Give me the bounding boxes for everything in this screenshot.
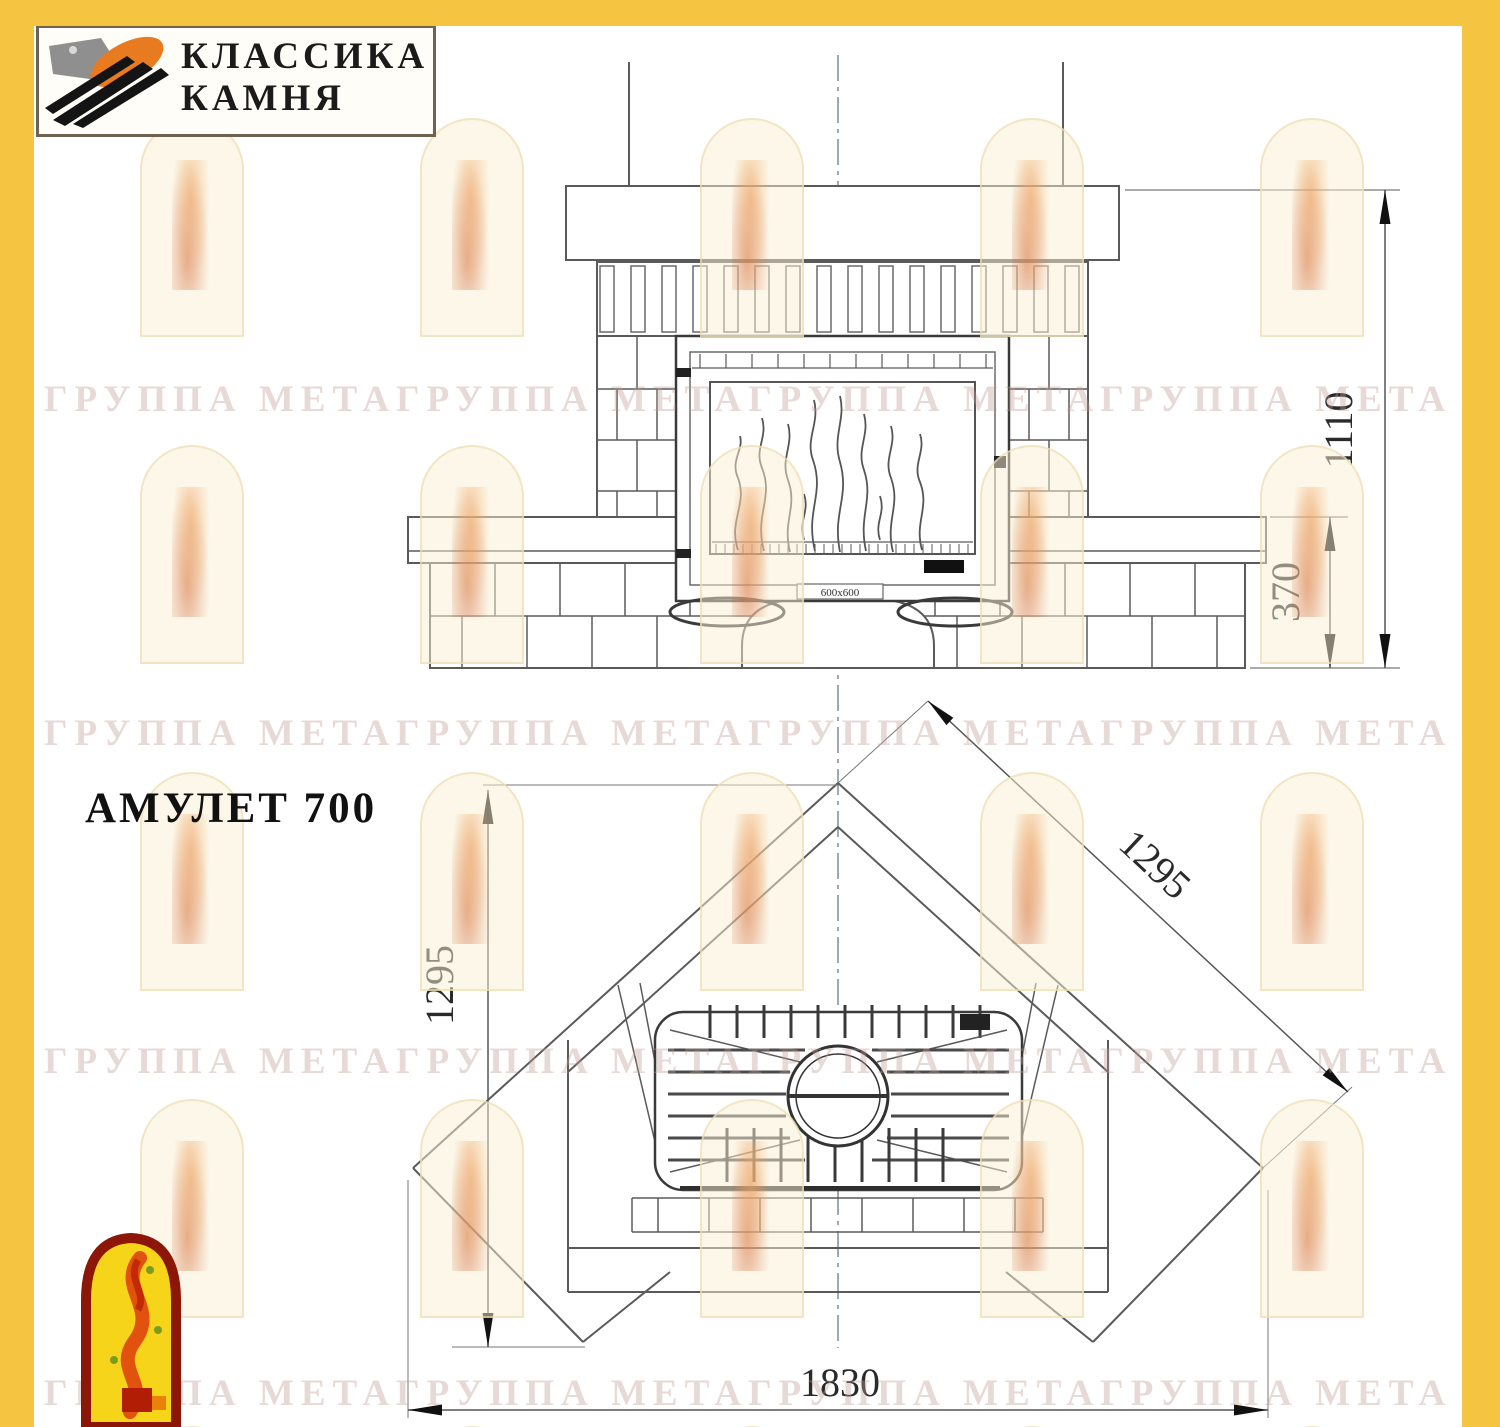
brand-line-2: КАМНЯ (181, 78, 428, 120)
mantel-shelf (566, 186, 1119, 260)
insert-plate-label: 600x600 (821, 587, 860, 599)
door-handle (924, 560, 964, 573)
fireplace-technical-drawing: 600x600 1110 370 (0, 0, 1500, 1427)
brand-logo: КЛАССИКА КАМНЯ (36, 25, 436, 137)
dim-1295-right-label: 1295 (1111, 820, 1200, 907)
door-hinge-top (676, 368, 691, 377)
frame-right-band (1462, 0, 1500, 1427)
frame-top-band (0, 0, 1500, 26)
flame-in-arch-logo (78, 1230, 188, 1427)
product-title: АМУЛЕТ 700 (85, 784, 377, 833)
dim-370-label: 370 (1263, 562, 1308, 622)
brand-logo-text: КЛАССИКА КАМНЯ (181, 36, 428, 120)
dim-1295-left-label: 1295 (417, 945, 462, 1025)
wood-niche-arch (742, 600, 934, 668)
front-elevation (408, 62, 1266, 668)
dim-1110-label: 1110 (1316, 391, 1361, 468)
stone-slabs-icon (39, 28, 174, 128)
frame-left-band (0, 0, 34, 1427)
door-hinge-bottom (676, 549, 691, 558)
brand-line-1: КЛАССИКА (181, 36, 428, 78)
insert-plan-port (960, 1014, 990, 1030)
door-latch (994, 456, 1006, 468)
catalog-page: 600x600 1110 370 (0, 0, 1500, 1427)
dim-1830-label: 1830 (800, 1360, 880, 1405)
